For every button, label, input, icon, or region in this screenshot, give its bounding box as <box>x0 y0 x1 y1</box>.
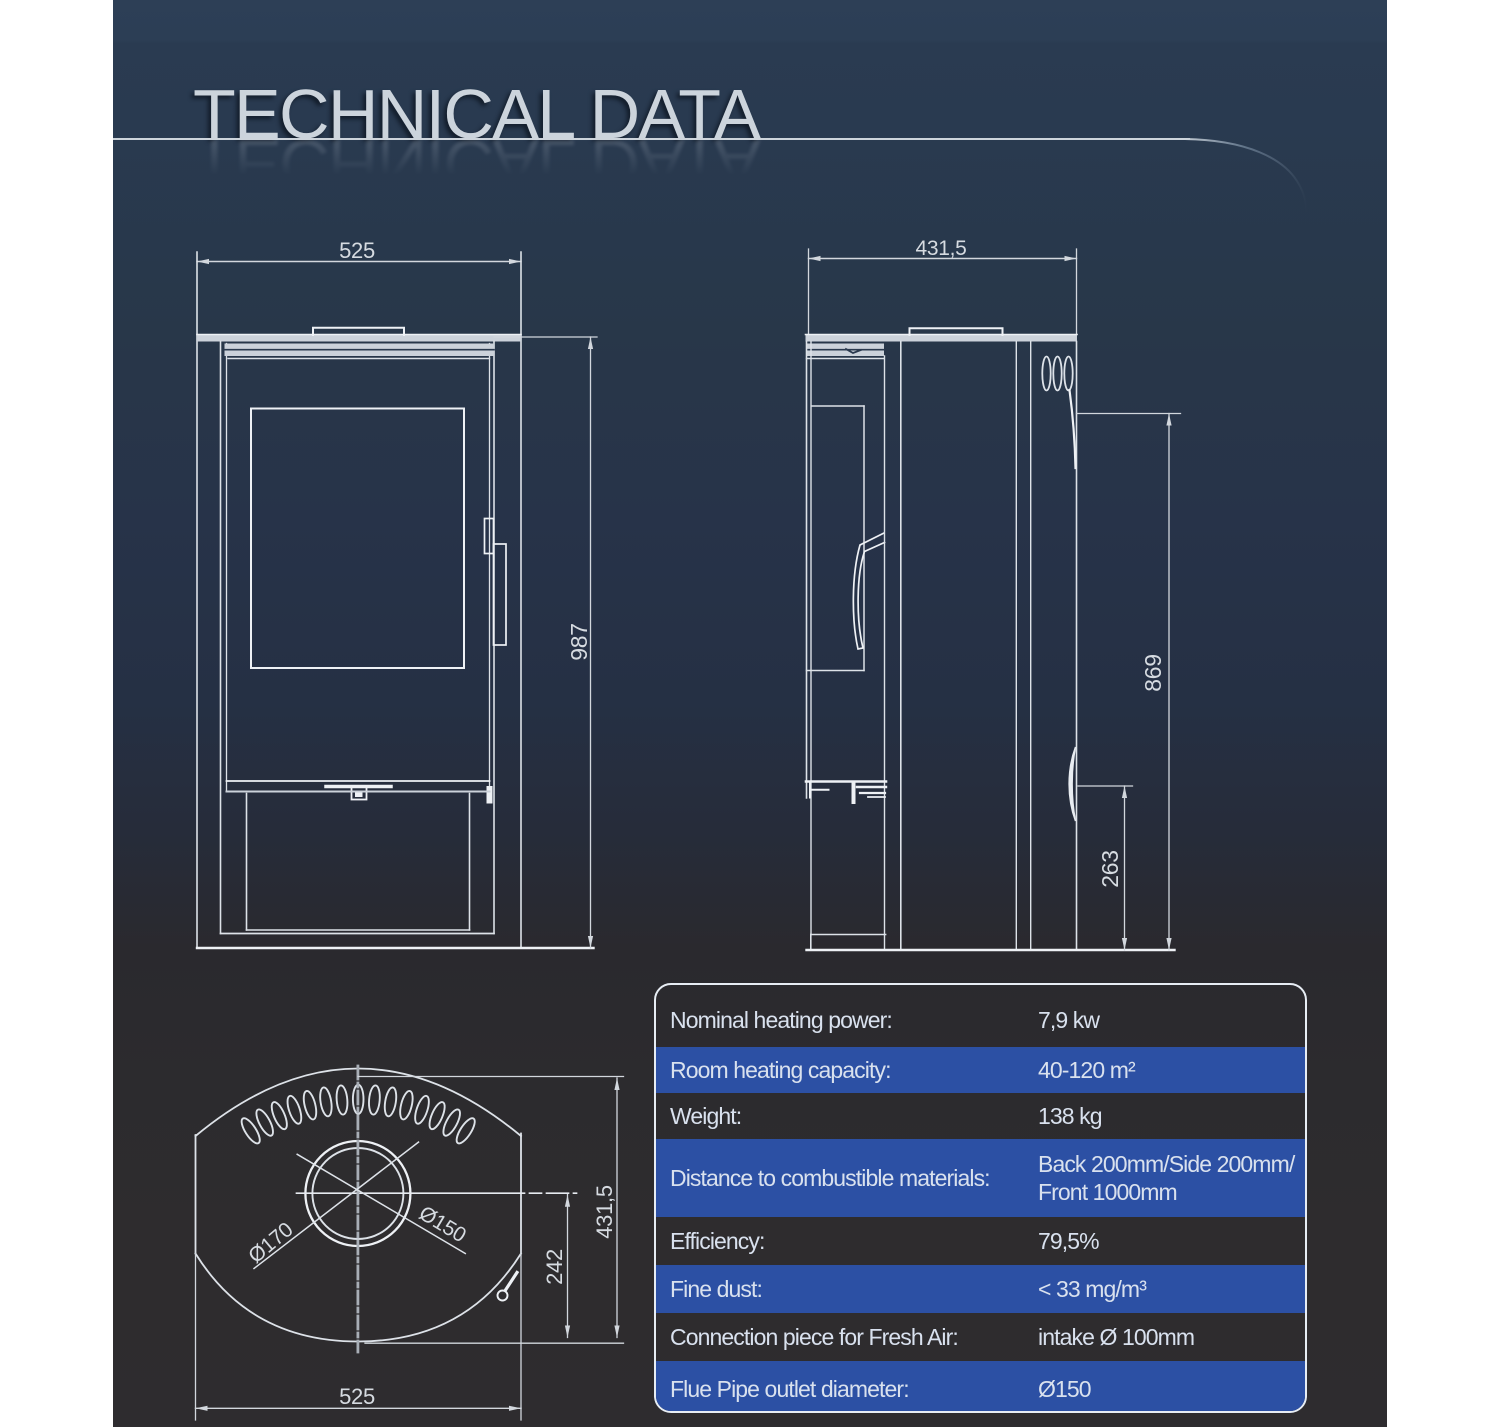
svg-text:987: 987 <box>566 623 592 660</box>
svg-text:431,5: 431,5 <box>592 1185 617 1239</box>
svg-text:431,5: 431,5 <box>915 237 966 260</box>
svg-text:263: 263 <box>1097 850 1123 887</box>
svg-text:Ø170: Ø170 <box>244 1218 297 1268</box>
svg-text:525: 525 <box>339 1384 375 1409</box>
svg-text:242: 242 <box>542 1249 567 1285</box>
svg-text:525: 525 <box>339 238 375 263</box>
svg-text:869: 869 <box>1140 654 1166 691</box>
